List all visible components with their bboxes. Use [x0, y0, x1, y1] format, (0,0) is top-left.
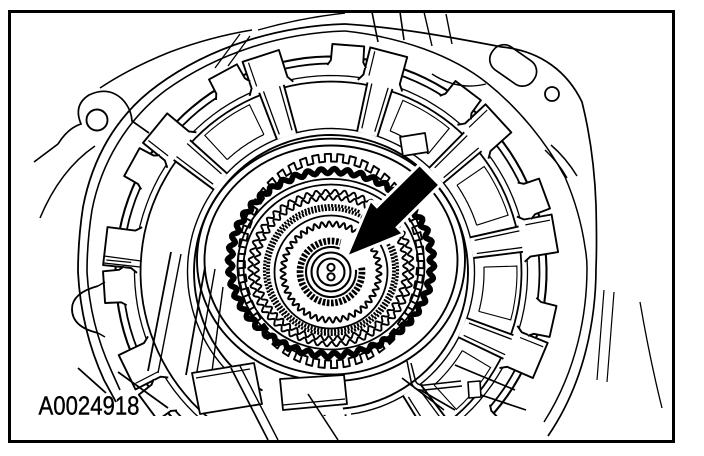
svg-text:A0024918: A0024918 — [39, 393, 140, 421]
